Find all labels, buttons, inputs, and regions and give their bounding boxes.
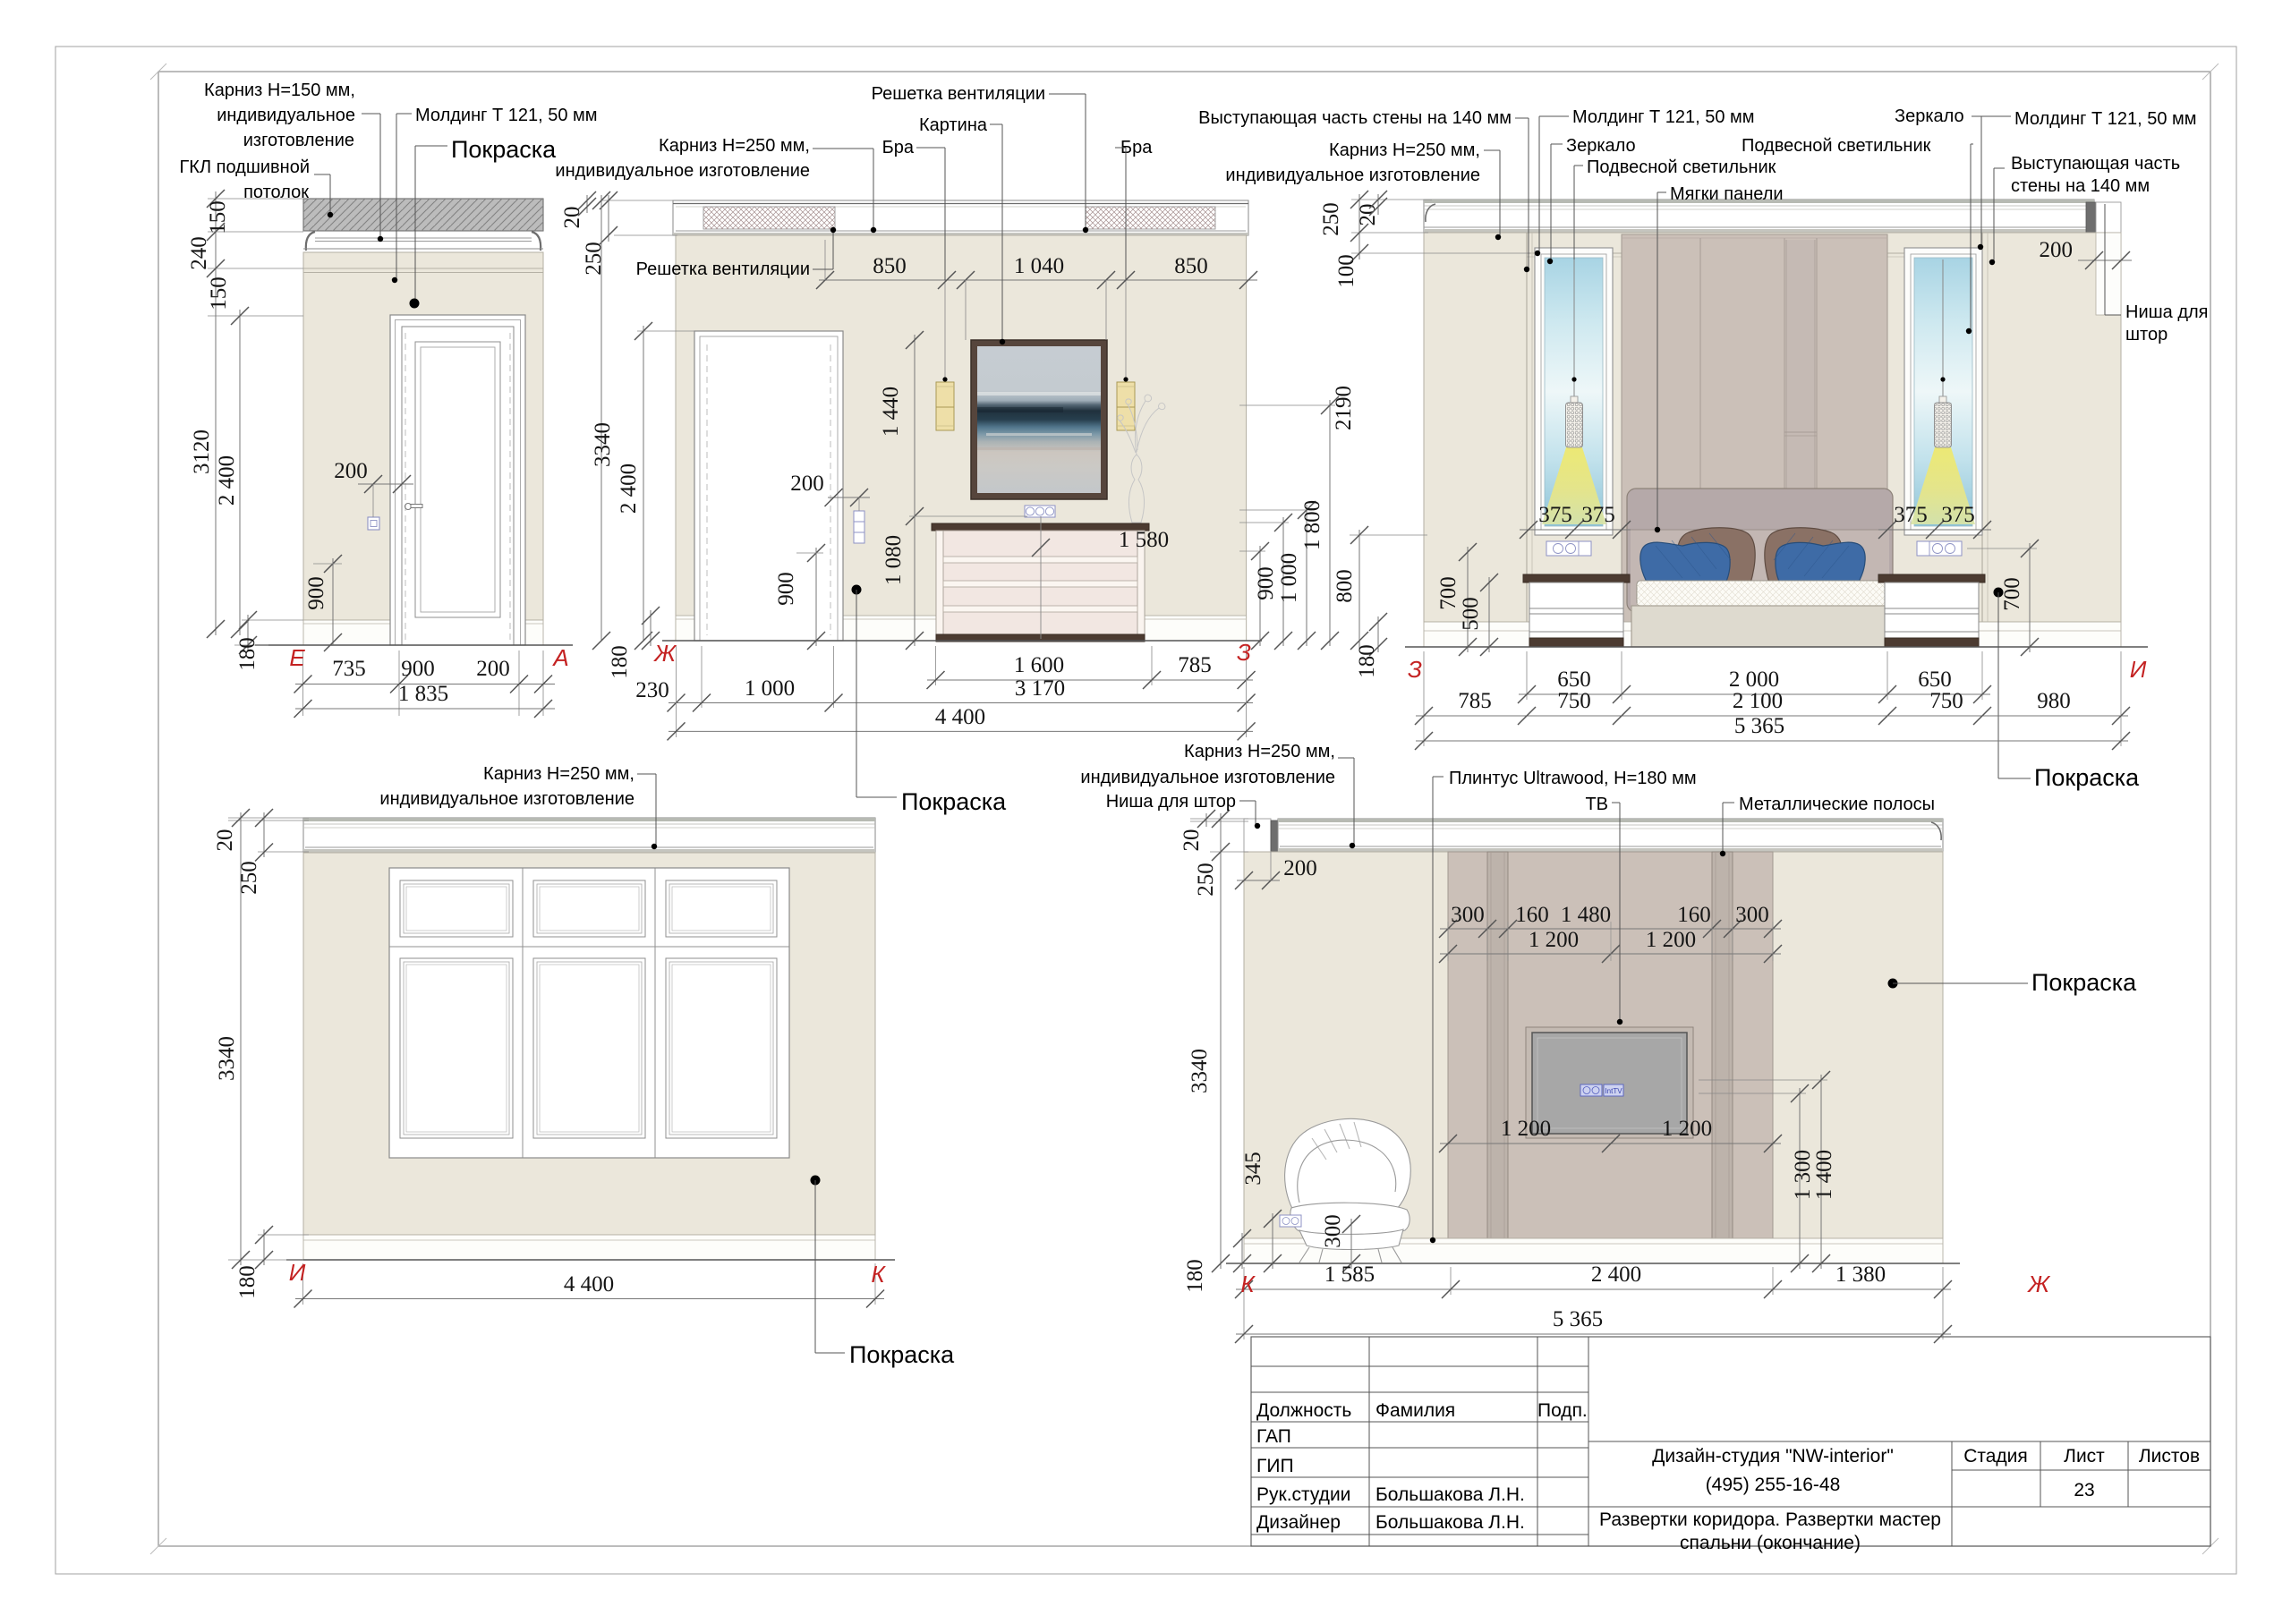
svg-text:1 600: 1 600 — [1014, 653, 1064, 677]
svg-text:2 400: 2 400 — [1591, 1263, 1641, 1287]
svg-text:Покраска: Покраска — [451, 136, 557, 163]
svg-text:Подвесной светильник: Подвесной светильник — [1587, 157, 1776, 177]
svg-text:Покраска: Покраска — [849, 1341, 955, 1368]
svg-text:1 200: 1 200 — [1501, 1117, 1551, 1141]
svg-text:IntTV: IntTV — [1605, 1087, 1622, 1095]
svg-text:Карниз H=250 мм,: Карниз H=250 мм, — [1184, 742, 1335, 761]
svg-text:2 400: 2 400 — [215, 455, 239, 506]
svg-text:Е: Е — [289, 644, 305, 671]
svg-text:180: 180 — [235, 637, 260, 671]
svg-text:735: 735 — [332, 657, 366, 681]
svg-text:2 000: 2 000 — [1729, 667, 1779, 692]
svg-text:ТВ: ТВ — [1585, 795, 1608, 814]
svg-text:К: К — [1240, 1271, 1256, 1297]
svg-text:20: 20 — [1180, 829, 1204, 852]
svg-text:1 380: 1 380 — [1835, 1263, 1886, 1287]
svg-text:180: 180 — [235, 1265, 260, 1299]
svg-text:900: 900 — [774, 572, 798, 606]
svg-text:750: 750 — [1929, 689, 1963, 713]
svg-text:300: 300 — [1321, 1214, 1345, 1248]
svg-text:Фамилия: Фамилия — [1375, 1400, 1455, 1421]
svg-text:785: 785 — [1178, 653, 1212, 677]
svg-text:900: 900 — [1254, 566, 1278, 600]
svg-text:индивидуальное изготовление: индивидуальное изготовление — [379, 789, 634, 809]
svg-text:Карниз H=150 мм,: Карниз H=150 мм, — [204, 81, 355, 100]
svg-text:1 040: 1 040 — [1014, 254, 1064, 278]
svg-text:200: 200 — [476, 657, 510, 681]
svg-text:1 400: 1 400 — [1812, 1150, 1836, 1200]
svg-text:Карниз H=250 мм,: Карниз H=250 мм, — [483, 764, 634, 784]
svg-text:индивидуальное изготовление: индивидуальное изготовление — [1225, 166, 1480, 185]
svg-text:И: И — [289, 1259, 306, 1286]
svg-text:150: 150 — [206, 200, 230, 234]
svg-text:спальни (окончание): спальни (окончание) — [1680, 1533, 1861, 1553]
svg-text:4 400: 4 400 — [564, 1272, 614, 1297]
svg-text:20: 20 — [1356, 204, 1380, 226]
svg-text:250: 250 — [1319, 202, 1343, 236]
svg-text:2 400: 2 400 — [617, 463, 641, 514]
svg-text:К: К — [871, 1261, 886, 1288]
svg-text:ГКЛ подшивной: ГКЛ подшивной — [179, 157, 310, 177]
svg-text:1 440: 1 440 — [879, 387, 903, 437]
svg-text:3 170: 3 170 — [1015, 676, 1065, 701]
svg-text:900: 900 — [401, 657, 435, 681]
svg-text:250: 250 — [582, 242, 606, 276]
svg-text:200: 200 — [2040, 238, 2074, 262]
svg-text:Дизайнер: Дизайнер — [1256, 1512, 1341, 1533]
svg-text:Листов: Листов — [2139, 1446, 2200, 1467]
svg-text:150: 150 — [207, 276, 231, 310]
svg-text:700: 700 — [1436, 576, 1461, 610]
svg-text:750: 750 — [1557, 689, 1591, 713]
svg-text:2 100: 2 100 — [1733, 689, 1783, 713]
svg-text:345: 345 — [1241, 1152, 1265, 1186]
svg-text:300: 300 — [1735, 903, 1769, 927]
svg-text:850: 850 — [1174, 254, 1208, 278]
svg-text:Покраска: Покраска — [901, 788, 1007, 815]
svg-text:240: 240 — [187, 236, 211, 270]
svg-text:штор: штор — [2125, 325, 2168, 344]
svg-text:200: 200 — [334, 459, 368, 483]
svg-text:200: 200 — [790, 472, 824, 496]
svg-text:4 400: 4 400 — [935, 705, 985, 729]
svg-text:Ж: Ж — [2026, 1271, 2051, 1297]
svg-text:3340: 3340 — [1188, 1049, 1212, 1093]
svg-text:785: 785 — [1458, 689, 1492, 713]
svg-text:20: 20 — [560, 207, 584, 229]
svg-text:Бра: Бра — [882, 138, 915, 157]
svg-text:стены на 140 мм: стены на 140 мм — [2011, 176, 2150, 196]
svg-text:индивидуальное изготовление: индивидуальное изготовление — [555, 161, 810, 181]
svg-text:1 300: 1 300 — [1791, 1150, 1815, 1200]
svg-text:3340: 3340 — [215, 1036, 239, 1081]
svg-text:А: А — [551, 644, 568, 671]
svg-text:1 835: 1 835 — [398, 682, 448, 706]
svg-text:Выступающая часть: Выступающая часть — [2011, 154, 2180, 174]
svg-text:500: 500 — [1459, 597, 1483, 631]
svg-text:Металлические полосы: Металлические полосы — [1739, 795, 1935, 814]
svg-text:160: 160 — [1677, 903, 1711, 927]
svg-text:300: 300 — [1451, 903, 1485, 927]
svg-text:Молдинг Т 121, 50 мм: Молдинг Т 121, 50 мм — [2014, 109, 2197, 129]
svg-text:1 000: 1 000 — [745, 676, 795, 701]
svg-text:1 000: 1 000 — [1277, 553, 1301, 603]
svg-text:980: 980 — [2037, 689, 2071, 713]
svg-text:180: 180 — [1355, 644, 1379, 678]
svg-text:Картина: Картина — [919, 115, 988, 135]
svg-text:230: 230 — [635, 678, 669, 702]
svg-text:Ниша для: Ниша для — [2125, 302, 2209, 322]
svg-text:ГИП: ГИП — [1256, 1456, 1294, 1476]
svg-text:375: 375 — [1538, 503, 1572, 527]
svg-text:Покраска: Покраска — [2031, 969, 2137, 996]
svg-text:Развертки коридора. Развертки: Развертки коридора. Развертки мастер — [1599, 1509, 1941, 1530]
svg-text:3340: 3340 — [591, 422, 615, 467]
svg-text:200: 200 — [1283, 856, 1317, 880]
svg-text:1 480: 1 480 — [1561, 903, 1611, 927]
svg-text:1 200: 1 200 — [1646, 928, 1696, 952]
svg-text:индивидуальное изготовление: индивидуальное изготовление — [1080, 768, 1335, 787]
svg-text:375: 375 — [1941, 503, 1975, 527]
svg-text:З: З — [1408, 656, 1422, 683]
svg-text:700: 700 — [2000, 577, 2024, 611]
svg-text:Лист: Лист — [2064, 1446, 2105, 1467]
svg-text:Должность: Должность — [1256, 1400, 1351, 1421]
svg-text:5 365: 5 365 — [1553, 1307, 1603, 1331]
svg-text:1 585: 1 585 — [1324, 1263, 1375, 1287]
svg-text:Большакова Л.Н.: Большакова Л.Н. — [1375, 1484, 1525, 1505]
svg-text:Стадия: Стадия — [1963, 1446, 2028, 1467]
svg-text:Ниша для штор: Ниша для штор — [1106, 792, 1236, 812]
svg-text:2190: 2190 — [1332, 386, 1356, 430]
svg-text:Большакова Л.Н.: Большакова Л.Н. — [1375, 1512, 1525, 1533]
svg-text:5 365: 5 365 — [1734, 714, 1784, 738]
svg-text:900: 900 — [304, 576, 328, 610]
svg-text:ГАП: ГАП — [1256, 1426, 1291, 1447]
svg-text:И: И — [2130, 656, 2147, 683]
svg-text:Рук.студии: Рук.студии — [1256, 1484, 1350, 1505]
svg-text:20: 20 — [213, 829, 237, 852]
svg-text:1 200: 1 200 — [1662, 1117, 1712, 1141]
svg-text:З: З — [1237, 639, 1251, 666]
svg-text:375: 375 — [1894, 503, 1928, 527]
svg-text:Молдинг Т 121, 50 мм: Молдинг Т 121, 50 мм — [1572, 107, 1755, 127]
svg-text:850: 850 — [873, 254, 907, 278]
svg-text:800: 800 — [1333, 569, 1357, 603]
svg-text:Карниз H=250 мм,: Карниз H=250 мм, — [1329, 140, 1480, 160]
svg-text:160: 160 — [1515, 903, 1549, 927]
svg-text:Плинтус Ultrawood, H=180 мм: Плинтус Ultrawood, H=180 мм — [1449, 769, 1697, 788]
svg-text:Ж: Ж — [652, 640, 677, 667]
svg-text:3120: 3120 — [190, 429, 214, 474]
svg-text:Дизайн-студия "NW-interior": Дизайн-студия "NW-interior" — [1652, 1446, 1894, 1467]
svg-text:Решетка вентиляции: Решетка вентиляции — [636, 259, 810, 279]
svg-text:Решетка вентиляции: Решетка вентиляции — [872, 84, 1045, 104]
svg-text:Мягки панели: Мягки панели — [1670, 184, 1784, 204]
svg-text:Покраска: Покраска — [2034, 764, 2140, 791]
svg-text:100: 100 — [1334, 254, 1358, 288]
svg-text:1 800: 1 800 — [1300, 500, 1324, 550]
svg-text:изготовление: изготовление — [243, 131, 354, 150]
svg-text:(495) 255-16-48: (495) 255-16-48 — [1706, 1475, 1841, 1495]
svg-text:180: 180 — [1183, 1259, 1207, 1293]
svg-text:1 200: 1 200 — [1529, 928, 1579, 952]
svg-text:650: 650 — [1918, 667, 1952, 692]
svg-text:Выступающая часть стены на 140: Выступающая часть стены на 140 мм — [1198, 108, 1512, 128]
svg-text:23: 23 — [2074, 1480, 2094, 1501]
svg-text:Карниз H=250 мм,: Карниз H=250 мм, — [659, 136, 810, 156]
svg-text:250: 250 — [237, 861, 261, 895]
svg-text:Зеркало: Зеркало — [1895, 106, 1964, 126]
svg-text:индивидуальное: индивидуальное — [217, 106, 355, 125]
svg-text:180: 180 — [608, 645, 632, 679]
svg-text:потолок: потолок — [243, 183, 309, 202]
svg-text:375: 375 — [1581, 503, 1615, 527]
svg-text:Зеркало: Зеркало — [1566, 136, 1636, 156]
svg-text:Молдинг Т 121, 50 мм: Молдинг Т 121, 50 мм — [415, 106, 598, 125]
svg-text:250: 250 — [1194, 863, 1218, 897]
svg-text:1 580: 1 580 — [1119, 528, 1169, 552]
svg-text:1 080: 1 080 — [881, 535, 906, 585]
svg-text:Подвесной светильник: Подвесной светильник — [1742, 136, 1931, 156]
svg-text:650: 650 — [1557, 667, 1591, 692]
svg-text:Подп.: Подп. — [1537, 1400, 1588, 1421]
